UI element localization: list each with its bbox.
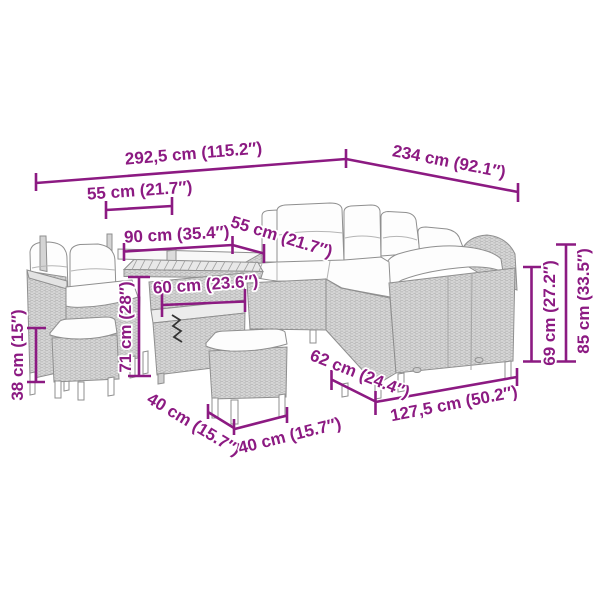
svg-text:69 cm (27.2″): 69 cm (27.2″) (540, 260, 559, 365)
svg-text:292,5 cm (115.2″): 292,5 cm (115.2″) (124, 138, 263, 168)
svg-text:38 cm (15″): 38 cm (15″) (8, 309, 27, 400)
svg-text:71 cm (28″): 71 cm (28″) (116, 281, 135, 372)
svg-text:85 cm (33.5″): 85 cm (33.5″) (574, 248, 593, 353)
svg-text:234 cm (92.1″): 234 cm (92.1″) (391, 141, 507, 182)
svg-text:90 cm (35.4″): 90 cm (35.4″) (124, 222, 230, 246)
svg-text:55 cm (21.7″): 55 cm (21.7″) (86, 177, 193, 203)
svg-text:40 cm (15.7″): 40 cm (15.7″) (236, 414, 343, 458)
